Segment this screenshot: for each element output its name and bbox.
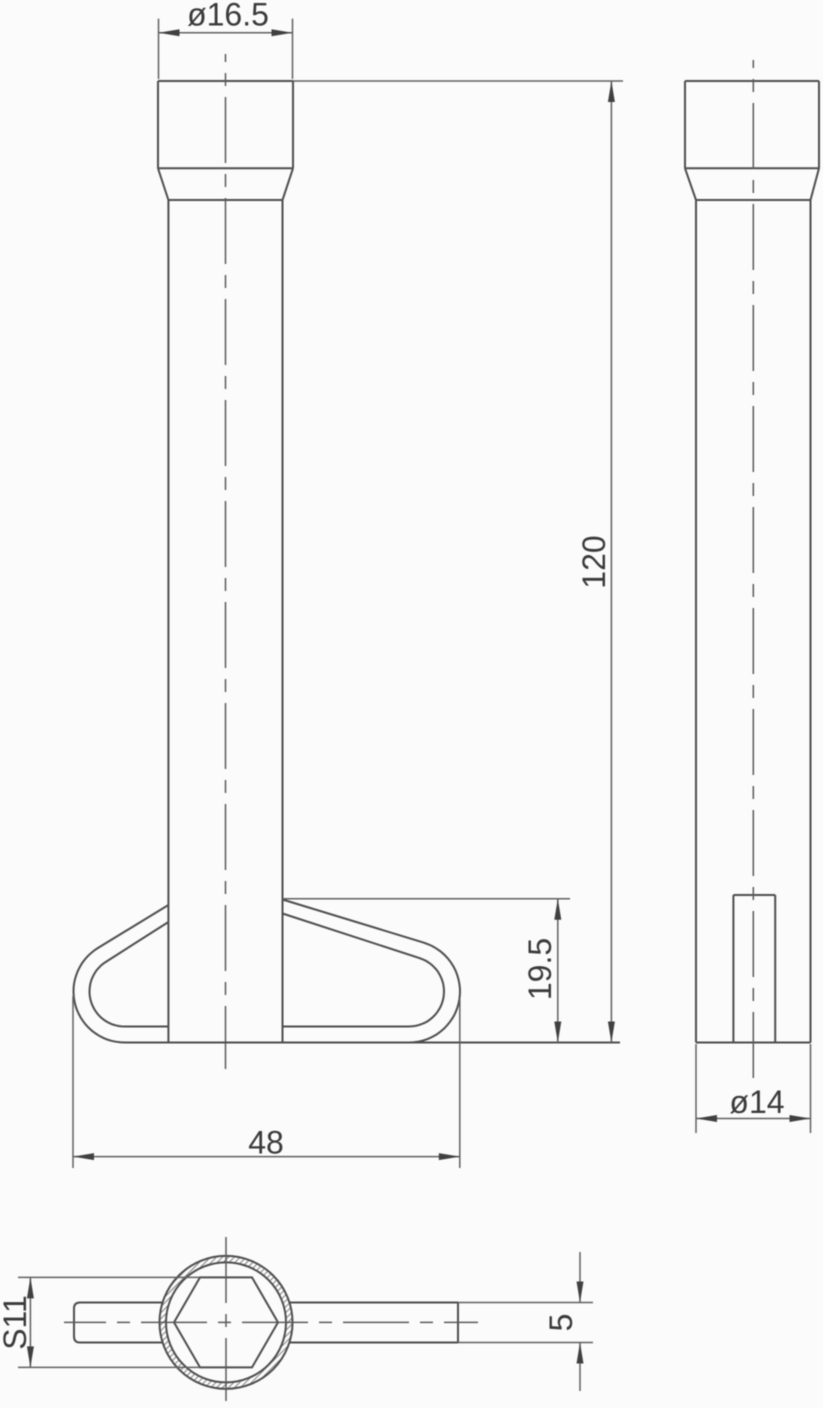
svg-text:5: 5 [543,1314,579,1332]
svg-text:19.5: 19.5 [522,938,558,1000]
svg-text:120: 120 [576,535,612,588]
svg-text:S11: S11 [0,1295,33,1350]
svg-text:ø14: ø14 [729,1084,784,1120]
svg-text:ø16.5: ø16.5 [187,0,269,33]
svg-text:48: 48 [248,1125,284,1161]
